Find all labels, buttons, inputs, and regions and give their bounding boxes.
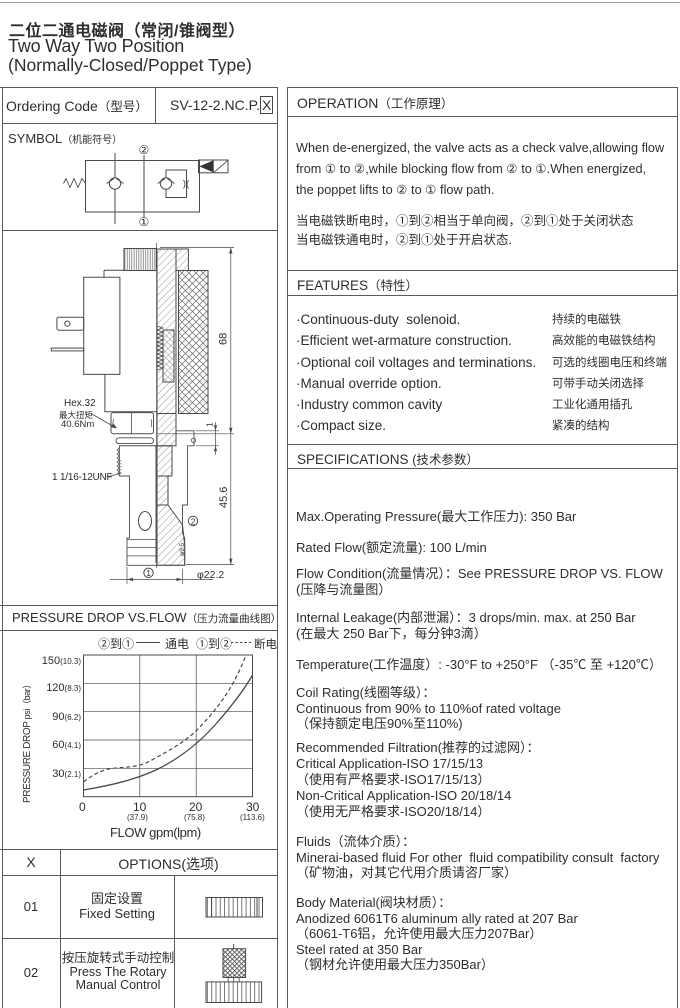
svg-text:2: 2 (191, 516, 196, 526)
svg-text:45.6: 45.6 (218, 487, 230, 508)
svg-text:②: ② (139, 143, 150, 157)
svg-text:68: 68 (218, 333, 230, 345)
svg-text:φ22.2: φ22.2 (197, 569, 224, 581)
svg-text:1: 1 (146, 568, 151, 578)
svg-text:φ9.5: φ9.5 (179, 542, 186, 556)
svg-text:1: 1 (205, 422, 215, 427)
